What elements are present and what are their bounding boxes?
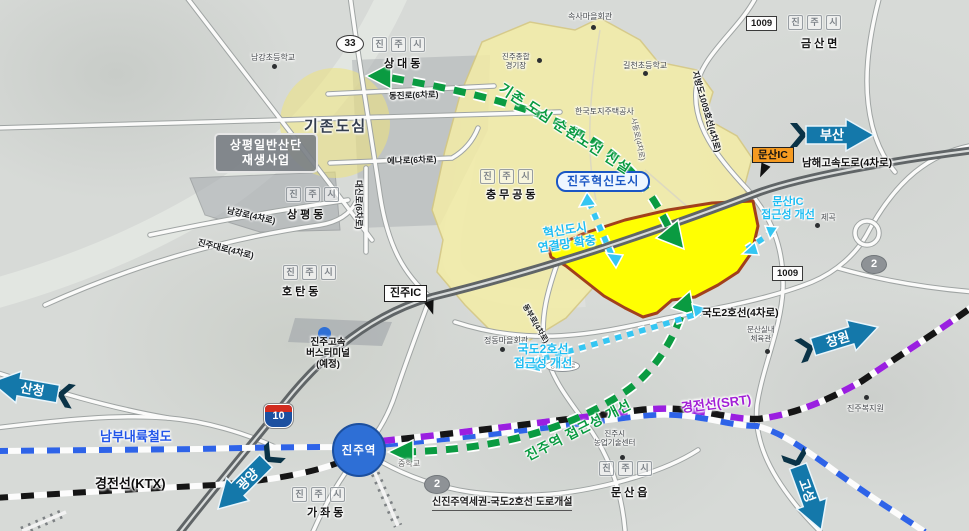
- route-badge-2-south: 2: [424, 475, 450, 494]
- arrow-changwon: 창원: [793, 312, 883, 367]
- route-badge-1009-top: 1009: [746, 16, 777, 31]
- regen-line1: 상평일반산단: [223, 138, 309, 153]
- ghost-char: 시: [826, 15, 841, 30]
- label-munsan-gym: 문산실내 체육관: [747, 326, 775, 343]
- ghost-char: 주: [807, 15, 822, 30]
- label-district-sangdae: 상대동: [384, 58, 423, 71]
- marker-gilcheon-school: [643, 71, 648, 76]
- label-district-hotan: 호탄동: [282, 286, 321, 299]
- bus-terminal-line3: (예정): [292, 360, 364, 371]
- ghost-char: 주: [499, 169, 514, 184]
- ghost-char: 진: [283, 265, 298, 280]
- label-district-chungmu: 충무공동: [486, 189, 538, 202]
- svg-text:고성: 고성: [796, 477, 818, 505]
- marker-namgang-school: [272, 64, 277, 69]
- label-plan-gukdo2-access: 국도2호선 접근성 개선: [505, 343, 581, 371]
- marker-stadium: [537, 58, 542, 63]
- arrow-sancheong: 산청: [0, 366, 77, 412]
- ic-access-line1: 문산IC: [748, 196, 828, 209]
- ghost-char: 진: [599, 461, 614, 476]
- label-rail-ktx: 경전선(KTX): [95, 477, 166, 492]
- ghost-char: 진: [286, 187, 301, 202]
- marker-jinju-station: 진주역: [332, 423, 386, 477]
- stadium-line2: 경기장: [502, 62, 530, 71]
- svg-text:창원: 창원: [824, 329, 851, 350]
- marker-jegok: [815, 223, 820, 228]
- label-city-jinju-6: 진주시: [599, 461, 652, 476]
- arrow-busan: 부산: [790, 119, 874, 151]
- ghost-char: 진: [788, 15, 803, 30]
- map-canvas: 부산 창원 산청 광양 고성 33 1009 1009 2 2 10 진주시 진…: [0, 0, 969, 531]
- label-agri-center: 진주시 농업기술센터: [594, 430, 635, 447]
- ghost-char: 시: [321, 265, 336, 280]
- map-layers: 부산 창원 산청 광양 고성: [0, 0, 969, 531]
- label-welfare: 진주복지원: [847, 404, 884, 413]
- marker-welfare: [864, 395, 869, 400]
- route-badge-1009-mid: 1009: [772, 266, 803, 281]
- label-namgang-school: 남강초등학교: [251, 53, 295, 62]
- gukdo2-access-line1: 국도2호선: [505, 343, 581, 357]
- label-city-jinju-5: 진주시: [283, 265, 336, 280]
- label-stadium: 진주종합 경기장: [502, 53, 530, 70]
- label-district-sangpyeong: 상평동: [287, 209, 326, 222]
- ghost-char: 진: [292, 487, 307, 502]
- label-road-namhae-expwy: 남해고속도로(4차로): [802, 157, 892, 169]
- box-munsan-ic: 문산IC: [752, 147, 794, 163]
- ghost-char: 시: [637, 461, 652, 476]
- label-road-daesin: 대신로(6차로): [353, 180, 363, 230]
- box-jinju-ic: 진주IC: [384, 285, 427, 302]
- label-bus-terminal: 진주고속 버스터미널 (예정): [292, 338, 364, 371]
- ghost-char: 진: [480, 169, 495, 184]
- label-city-jinju-2: 진주시: [788, 15, 841, 30]
- box-innovation-city: 진주혁신도시: [556, 171, 650, 192]
- ghost-char: 진: [372, 37, 387, 52]
- route-badge-2-east: 2: [861, 255, 887, 274]
- ghost-char: 시: [410, 37, 425, 52]
- label-road-dongjin: 동진로(6차로): [389, 90, 439, 101]
- munsan-gym-line2: 체육관: [747, 335, 775, 344]
- label-city-jinju-4: 진주시: [286, 187, 339, 202]
- box-sangpyeong-regeneration: 상평일반산단 재생사업: [214, 133, 318, 173]
- marker-munsan-gym: [765, 349, 770, 354]
- ghost-char: 시: [324, 187, 339, 202]
- label-jinju-station: 진주역: [342, 442, 377, 458]
- label-district-gajwa: 가좌동: [307, 507, 346, 520]
- ghost-char: 주: [618, 461, 633, 476]
- shield-number: 10: [265, 410, 292, 422]
- label-plan-munsan-ic-access: 문산IC 접근성 개선: [748, 196, 828, 221]
- label-middle-school: 중학교: [398, 459, 420, 468]
- ghost-char: 시: [330, 487, 345, 502]
- label-gilcheon-school: 길천초등학교: [623, 61, 667, 70]
- label-district-geumsan: 금산면: [801, 38, 840, 51]
- label-district-munsan: 문산읍: [611, 487, 650, 500]
- ghost-char: 주: [302, 265, 317, 280]
- label-lh-corp: 한국토지주택공사: [575, 107, 634, 116]
- label-city-jinju-3: 진주시: [480, 169, 533, 184]
- ghost-char: 주: [391, 37, 406, 52]
- regen-line2: 재생사업: [223, 153, 309, 168]
- svg-text:부산: 부산: [820, 128, 844, 143]
- label-road-ena: 에나로(6차로): [387, 155, 437, 166]
- label-city-jinju-1: 진주시: [372, 37, 425, 52]
- agri-line2: 농업기술센터: [594, 439, 635, 448]
- marker-agri-center: [620, 455, 625, 460]
- label-soksa-hall: 속사마을회관: [568, 12, 612, 21]
- ghost-char: 주: [305, 187, 320, 202]
- label-existing-downtown: 기존도심: [304, 118, 367, 135]
- ic-access-line2: 접근성 개선: [748, 209, 828, 222]
- label-city-jinju-7: 진주시: [292, 487, 345, 502]
- label-plan-new-road: 신진주역세권-국도2호선 도로개설: [432, 497, 572, 511]
- route-badge-expressway-10: 10: [264, 404, 293, 428]
- label-rail-nambu: 남부내륙철도: [100, 430, 172, 445]
- route-badge-33: 33: [336, 35, 364, 53]
- ghost-char: 주: [311, 487, 326, 502]
- label-road-gukdo2: 국도2호선(4차로): [702, 307, 779, 319]
- gukdo2-access-line2: 접근성 개선: [505, 357, 581, 371]
- ghost-char: 시: [518, 169, 533, 184]
- marker-soksa-hall: [591, 25, 596, 30]
